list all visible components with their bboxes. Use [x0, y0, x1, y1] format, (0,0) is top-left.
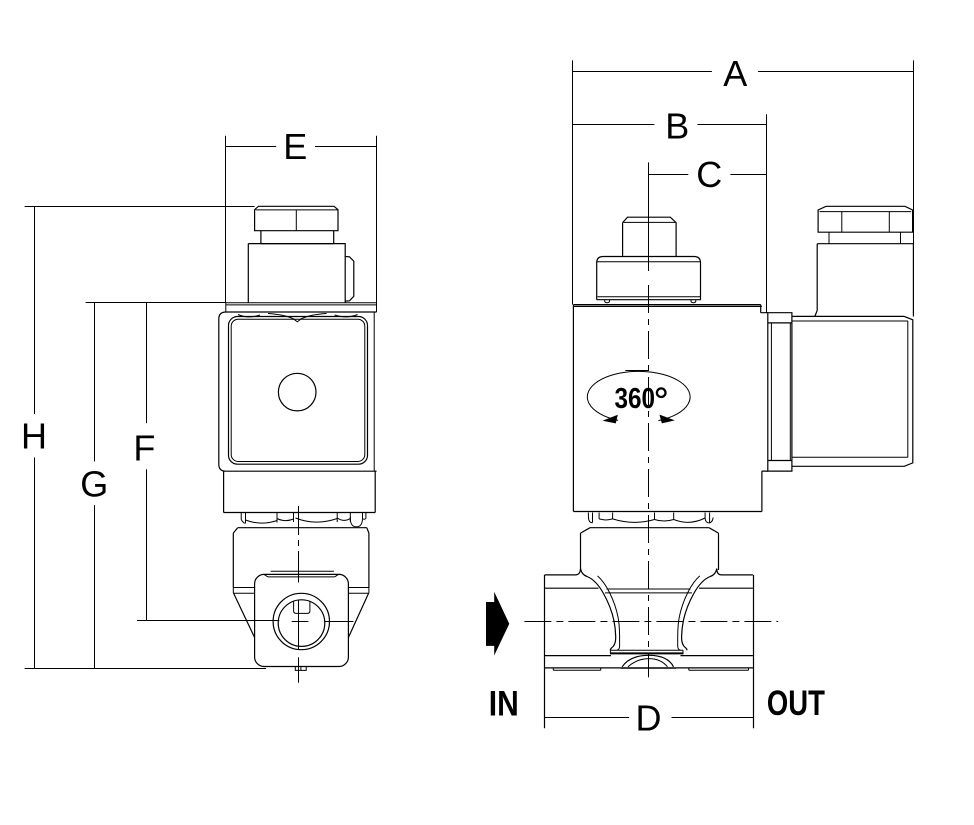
svg-text:E: E — [283, 126, 307, 167]
svg-text:A: A — [723, 53, 747, 94]
svg-text:C: C — [696, 154, 722, 195]
svg-text:OUT: OUT — [767, 683, 825, 723]
svg-text:G: G — [80, 463, 108, 504]
svg-text:F: F — [133, 428, 155, 469]
svg-text:360: 360 — [615, 383, 656, 415]
svg-text:IN: IN — [489, 683, 519, 723]
svg-text:H: H — [21, 415, 47, 456]
svg-text:B: B — [665, 105, 689, 146]
svg-text:D: D — [636, 697, 662, 738]
